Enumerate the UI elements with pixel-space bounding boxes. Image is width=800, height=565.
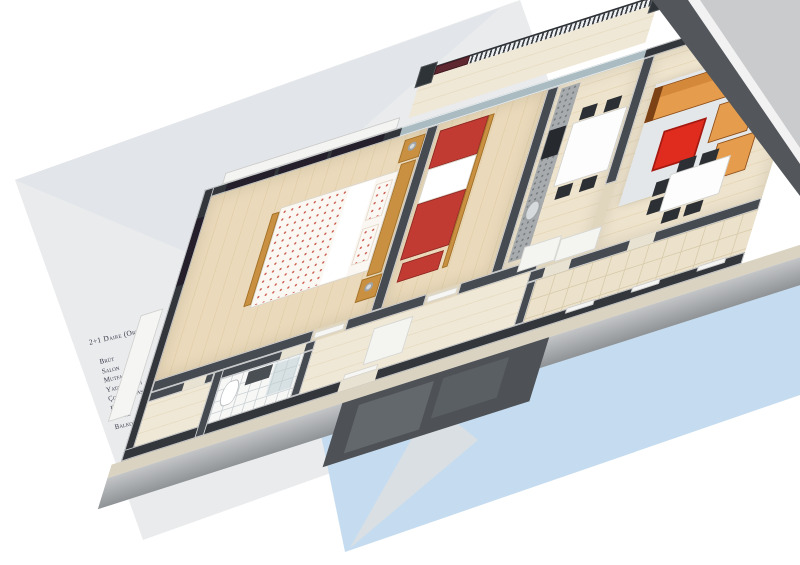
- building-clip: [0, 0, 800, 565]
- brochure-page: 2+1 Daire (Orta) Brüt Salon Mutfak Yatak…: [0, 0, 800, 565]
- floorplan-3d: [76, 0, 800, 565]
